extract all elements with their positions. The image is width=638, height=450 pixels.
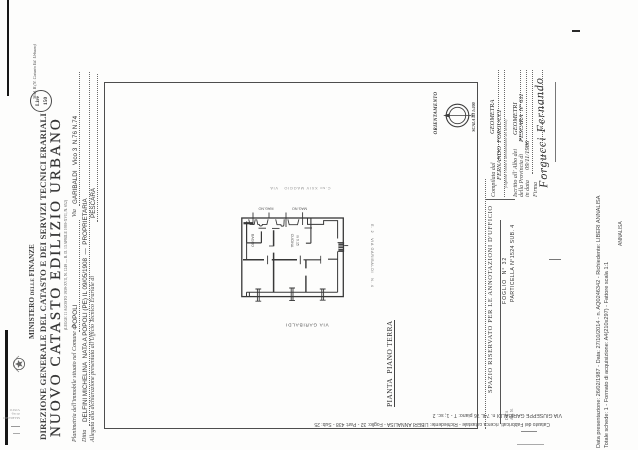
svg-text:VIA GARIBALDI: VIA GARIBALDI xyxy=(285,323,328,328)
svg-text:MAG.NO: MAG.NO xyxy=(258,207,273,211)
svg-text:BAGNO: BAGNO xyxy=(251,234,255,247)
svg-text:C.so XXIV MAGGIO VIA: C.so XXIV MAGGIO VIA xyxy=(269,186,330,190)
svg-text:CUCINA: CUCINA xyxy=(290,234,294,248)
svg-text:m 9.15: m 9.15 xyxy=(296,235,300,246)
svg-text:MAG.NO: MAG.NO xyxy=(292,207,307,211)
